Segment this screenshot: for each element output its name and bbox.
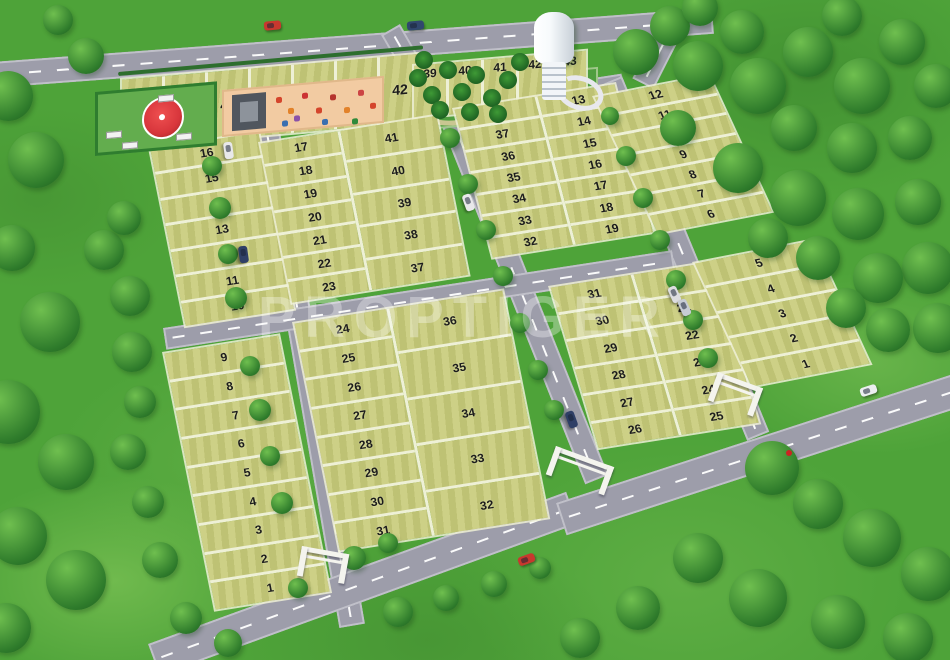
plot-number: 1 <box>799 357 812 371</box>
palm-tree-icon <box>415 51 433 69</box>
plot-number: 35 <box>451 359 467 375</box>
plot-number: 26 <box>626 422 643 437</box>
tree-icon <box>458 174 478 194</box>
tower-stair-icon <box>542 62 566 100</box>
bench-icon <box>122 141 138 149</box>
play-equipment-icon <box>282 120 288 127</box>
plot-number: 20 <box>307 209 323 225</box>
plot-number: 2 <box>788 332 801 346</box>
tree-icon <box>112 332 152 372</box>
sand-pit <box>232 92 266 131</box>
tree-icon <box>633 188 653 208</box>
tree-icon <box>793 479 843 529</box>
watermark: PROPTIGER <box>258 283 669 351</box>
plot-number: 39 <box>397 195 413 211</box>
plot-number: 4 <box>764 281 777 295</box>
water-tower <box>532 12 580 104</box>
plot-number: 30 <box>369 494 385 510</box>
tree-icon <box>383 597 413 627</box>
tree-icon <box>720 10 764 54</box>
tree-icon <box>544 400 564 420</box>
car-icon <box>264 20 282 30</box>
plot-number: 8 <box>225 379 234 394</box>
play-equipment-icon <box>322 119 328 126</box>
play-equipment-icon <box>352 118 358 125</box>
palm-tree-icon <box>461 103 479 121</box>
tree-icon <box>673 533 723 583</box>
palm-tree-icon <box>431 101 449 119</box>
plot-number: 5 <box>242 465 251 480</box>
tree-icon <box>713 143 763 193</box>
palm-tree-icon <box>511 53 529 71</box>
tree-icon <box>783 27 833 77</box>
tree-icon <box>124 386 156 418</box>
plot-number: 4 <box>248 494 257 509</box>
tree-icon <box>288 578 308 598</box>
plot-number: 41 <box>384 130 400 146</box>
tree-icon <box>901 547 950 601</box>
plot-number: 6 <box>237 436 246 451</box>
play-equipment-icon <box>344 107 350 114</box>
plot-number: 17 <box>293 140 309 156</box>
tree-icon <box>132 486 164 518</box>
tree-icon <box>698 348 718 368</box>
palm-tree-icon <box>439 61 457 79</box>
play-equipment-icon <box>276 97 282 104</box>
plot-number: 33 <box>516 212 533 228</box>
plot-number: 25 <box>340 350 356 366</box>
tree-icon <box>202 156 222 176</box>
tree-icon <box>378 533 398 553</box>
plot-number: 35 <box>505 169 522 185</box>
palm-tree-icon <box>453 83 471 101</box>
plot-number: 9 <box>677 147 690 161</box>
tree-icon <box>0 225 35 271</box>
tree-icon <box>218 244 238 264</box>
plot-number: 7 <box>695 187 708 201</box>
tree-icon <box>43 5 73 35</box>
tree-icon <box>827 123 877 173</box>
plot-number: 21 <box>312 232 328 248</box>
plot-number: 26 <box>346 379 362 395</box>
tree-icon <box>84 230 124 270</box>
plot-number: 34 <box>511 191 528 207</box>
palm-tree-icon <box>499 71 517 89</box>
tree-icon <box>271 492 293 514</box>
tree-icon <box>832 188 884 240</box>
bench-icon <box>158 94 174 102</box>
tree-icon <box>209 197 231 219</box>
tree-icon <box>770 170 826 226</box>
plot-number: 42 <box>392 81 408 98</box>
play-equipment-icon <box>330 94 336 101</box>
tree-icon <box>729 569 787 627</box>
play-equipment-icon <box>288 108 294 115</box>
tree-icon <box>38 434 94 490</box>
car-icon <box>859 384 878 398</box>
plot-number: 2 <box>260 552 269 567</box>
plot-number: 17 <box>592 178 609 194</box>
tree-icon <box>822 0 862 36</box>
tree-icon <box>745 441 799 495</box>
person-icon <box>786 450 792 456</box>
plot-number: 18 <box>598 200 615 216</box>
plot-number: 14 <box>576 113 593 129</box>
tree-icon <box>20 292 80 352</box>
tree-icon <box>771 105 817 151</box>
tree-icon <box>249 399 271 421</box>
garden <box>95 81 217 156</box>
plot-number: 19 <box>302 186 318 202</box>
tree-icon <box>46 550 106 610</box>
tree-icon <box>0 603 31 653</box>
tree-icon <box>0 380 40 444</box>
plot-number: 33 <box>470 451 486 467</box>
tree-icon <box>476 220 496 240</box>
plot-number: 37 <box>494 126 511 142</box>
tree-icon <box>0 507 47 565</box>
tree-icon <box>481 571 507 597</box>
plot-number: 25 <box>708 409 725 424</box>
tree-icon <box>110 434 146 470</box>
play-equipment-icon <box>370 103 376 110</box>
plot-number: 32 <box>522 234 539 250</box>
play-equipment-icon <box>302 92 308 99</box>
plot-number: 34 <box>460 405 476 421</box>
tree-icon <box>673 41 723 91</box>
palm-tree-icon <box>467 66 485 84</box>
palm-tree-icon <box>489 105 507 123</box>
play-equipment-icon <box>316 107 322 114</box>
tree-icon <box>260 446 280 466</box>
plot-number: 15 <box>581 135 598 151</box>
tree-icon <box>879 19 925 65</box>
tree-icon <box>225 287 247 309</box>
tree-icon <box>650 230 670 250</box>
plot-number: 16 <box>587 157 604 173</box>
plot-number: 40 <box>390 163 406 179</box>
palm-tree-icon <box>409 69 427 87</box>
play-equipment-icon <box>358 90 364 97</box>
plot-number: 5 <box>753 256 766 270</box>
tree-icon <box>834 58 890 114</box>
tree-icon <box>8 132 64 188</box>
plot-number: 9 <box>219 350 228 365</box>
tree-icon <box>748 218 788 258</box>
plot-number: 27 <box>352 408 368 424</box>
car-icon <box>407 20 425 30</box>
plot-number: 22 <box>316 255 332 271</box>
tree-icon <box>440 128 460 148</box>
tree-icon <box>433 585 459 611</box>
plot-number: 28 <box>358 436 374 452</box>
tree-icon <box>110 276 150 316</box>
plot-number: 1 <box>265 580 274 595</box>
plot-number: 19 <box>604 221 621 237</box>
plot-number: 36 <box>500 148 517 164</box>
tree-icon <box>866 308 910 352</box>
plot-number: 7 <box>231 408 240 423</box>
tree-icon <box>616 146 636 166</box>
plot-number: 29 <box>363 465 379 481</box>
plot-number: 3 <box>254 523 263 538</box>
tree-icon <box>913 303 950 353</box>
tree-icon <box>214 629 242 657</box>
gate-post <box>546 446 562 476</box>
tree-icon <box>560 618 600 658</box>
tree-icon <box>528 360 548 380</box>
tree-icon <box>895 179 941 225</box>
plot-number: 3 <box>776 306 789 320</box>
plot-number: 28 <box>610 367 627 382</box>
plot-block-central-upper: 171819202122234140393837 <box>258 113 471 304</box>
tree-icon <box>843 509 901 567</box>
tree-icon <box>796 236 840 280</box>
site-map: 4847464544434239404142431615141312111098… <box>0 0 950 660</box>
tree-icon <box>68 38 104 74</box>
plot-number: 38 <box>403 227 419 243</box>
bench-icon <box>176 133 192 141</box>
tree-icon <box>826 288 866 328</box>
plot-number: 13 <box>214 221 230 237</box>
tree-icon <box>811 595 865 649</box>
tree-icon <box>170 602 202 634</box>
plot-number: 12 <box>646 87 665 102</box>
plot-number: 11 <box>225 273 240 289</box>
plot-number: 6 <box>704 207 717 221</box>
tree-icon <box>142 542 178 578</box>
play-equipment-icon <box>294 115 300 122</box>
bench-icon <box>106 131 122 139</box>
water-tank-icon <box>534 12 574 64</box>
plot-number: 37 <box>409 260 425 276</box>
tree-icon <box>730 58 786 114</box>
plot-number: 18 <box>298 163 314 179</box>
tree-icon <box>883 613 933 660</box>
plot-number: 32 <box>479 497 495 513</box>
tree-icon <box>616 586 660 630</box>
tree-icon <box>914 64 950 108</box>
tree-icon <box>660 110 696 146</box>
plot-number: 27 <box>618 395 635 410</box>
tree-icon <box>601 107 619 125</box>
tree-icon <box>240 356 260 376</box>
tree-icon <box>902 242 950 294</box>
tree-icon <box>888 116 932 160</box>
tree-icon <box>107 201 141 235</box>
plot-number: 8 <box>686 167 699 181</box>
